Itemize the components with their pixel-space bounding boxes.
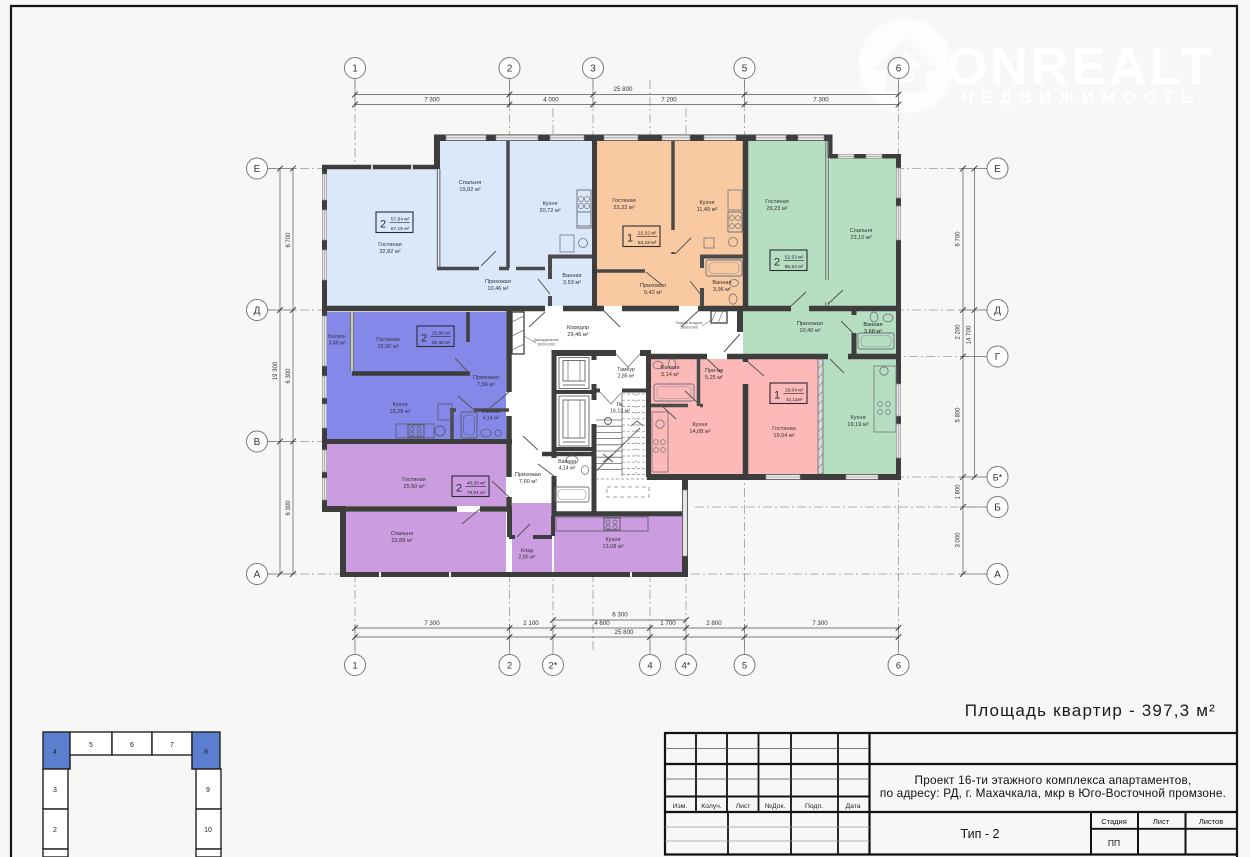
- svg-text:Площадь квартир - 397,3 м²: Площадь квартир - 397,3 м²: [965, 701, 1216, 720]
- svg-text:5: 5: [89, 742, 93, 749]
- svg-text:2: 2: [380, 219, 386, 231]
- svg-text:29,23 м²: 29,23 м²: [766, 206, 787, 212]
- svg-text:19,04 м²: 19,04 м²: [785, 388, 804, 394]
- svg-text:7 300: 7 300: [424, 97, 440, 104]
- svg-text:Ванная: Ванная: [863, 322, 882, 328]
- svg-text:2: 2: [456, 483, 462, 495]
- svg-text:6: 6: [896, 661, 901, 672]
- svg-text:Гостиная: Гостиная: [378, 242, 401, 248]
- svg-text:7 300: 7 300: [813, 97, 829, 104]
- svg-text:5 800: 5 800: [956, 407, 962, 423]
- svg-text:3,68 м²: 3,68 м²: [864, 329, 882, 335]
- svg-text:Гостиная: Гостиная: [772, 426, 795, 432]
- svg-text:7: 7: [170, 742, 174, 749]
- svg-text:Дата: Дата: [845, 803, 860, 810]
- svg-text:2: 2: [507, 661, 512, 672]
- svg-text:Спальня: Спальня: [459, 180, 481, 186]
- svg-text:1: 1: [774, 390, 780, 402]
- svg-text:2 100: 2 100: [523, 620, 539, 627]
- svg-text:2,85 м²: 2,85 м²: [519, 555, 536, 561]
- svg-text:Ванная: Ванная: [558, 459, 576, 465]
- svg-text:22,32 м²: 22,32 м²: [638, 231, 657, 237]
- svg-text:№Док.: №Док.: [765, 803, 786, 810]
- svg-text:Спальня: Спальня: [391, 531, 413, 537]
- svg-text:Кухня: Кухня: [606, 537, 621, 543]
- svg-text:Гостиная: Гостиная: [765, 199, 788, 205]
- svg-text:4,14 м²: 4,14 м²: [559, 466, 576, 472]
- svg-text:2,85 м²: 2,85 м²: [618, 374, 635, 380]
- svg-text:25,50 м²: 25,50 м²: [403, 484, 424, 490]
- svg-text:13,08 м²: 13,08 м²: [602, 544, 623, 550]
- svg-text:Ванная: Ванная: [660, 365, 679, 371]
- svg-text:4 600: 4 600: [594, 620, 610, 627]
- svg-text:При-ая: При-ая: [705, 368, 723, 374]
- svg-text:49,36 м²: 49,36 м²: [432, 340, 451, 346]
- svg-text:3: 3: [53, 787, 57, 794]
- svg-text:Лк.: Лк.: [616, 402, 623, 408]
- svg-text:6 300: 6 300: [612, 612, 628, 619]
- svg-text:Лист: Лист: [1153, 817, 1170, 826]
- svg-text:Прихожая: Прихожая: [797, 321, 823, 327]
- svg-text:10: 10: [204, 827, 212, 834]
- svg-text:4: 4: [53, 749, 57, 756]
- svg-text:Б*: Б*: [993, 473, 1003, 483]
- svg-text:А: А: [994, 570, 1001, 581]
- svg-text:7 300: 7 300: [424, 620, 440, 627]
- svg-text:Д: Д: [994, 306, 1001, 317]
- svg-text:11,49 м²: 11,49 м²: [697, 207, 718, 213]
- svg-text:23,10 м²: 23,10 м²: [850, 235, 871, 241]
- svg-text:6: 6: [130, 742, 134, 749]
- svg-text:32,82 м²: 32,82 м²: [379, 249, 400, 255]
- svg-text:Подп.: Подп.: [805, 803, 823, 810]
- svg-text:Спальня: Спальня: [850, 228, 872, 234]
- svg-text:1 800: 1 800: [956, 484, 962, 500]
- svg-text:Коридор: Коридор: [567, 325, 589, 331]
- svg-text:14 700: 14 700: [967, 325, 973, 344]
- svg-text:Прихожая: Прихожая: [473, 375, 499, 381]
- svg-text:87,15 м²: 87,15 м²: [391, 226, 410, 232]
- svg-text:8: 8: [204, 749, 208, 756]
- svg-text:Гостиная: Гостиная: [376, 337, 399, 343]
- svg-text:по адресу: РД, г. Махачкала, м: по адресу: РД, г. Махачкала, мкр в Юго-В…: [880, 786, 1226, 800]
- svg-text:16,13 м²: 16,13 м²: [610, 409, 630, 415]
- svg-text:9: 9: [206, 787, 210, 794]
- svg-text:Балкон: Балкон: [328, 334, 346, 340]
- svg-text:1: 1: [352, 64, 358, 75]
- svg-text:48,30 м²: 48,30 м²: [467, 481, 486, 487]
- svg-text:Изм.: Изм.: [673, 803, 688, 810]
- svg-text:14,08 м²: 14,08 м²: [689, 429, 710, 435]
- svg-text:2: 2: [53, 827, 57, 834]
- svg-text:10,46 м²: 10,46 м²: [487, 286, 508, 292]
- svg-text:6 300: 6 300: [286, 500, 292, 516]
- svg-text:3,53 м²: 3,53 м²: [563, 280, 581, 286]
- svg-text:9,42 м²: 9,42 м²: [644, 290, 662, 296]
- svg-text:Кухня: Кухня: [700, 200, 715, 206]
- svg-text:НЕДВИЖИМОСТЬ: НЕДВИЖИМОСТЬ: [961, 88, 1201, 107]
- svg-text:15,90 м²: 15,90 м²: [377, 344, 398, 350]
- svg-text:15,90 м²: 15,90 м²: [432, 331, 451, 337]
- svg-text:Стадия: Стадия: [1101, 817, 1127, 826]
- svg-text:1800х1000: 1800х1000: [537, 343, 555, 347]
- svg-text:2: 2: [421, 333, 427, 345]
- svg-text:2*: 2*: [549, 661, 558, 672]
- svg-text:3,48 м²: 3,48 м²: [329, 341, 346, 347]
- svg-text:25 800: 25 800: [614, 86, 633, 93]
- svg-text:6 700: 6 700: [286, 232, 292, 248]
- svg-text:Кухня: Кухня: [693, 422, 708, 428]
- svg-text:Ванная: Ванная: [482, 409, 500, 415]
- svg-text:22,88 м²: 22,88 м²: [391, 538, 412, 544]
- svg-text:85,52 м²: 85,52 м²: [785, 264, 804, 270]
- svg-text:20,72 м²: 20,72 м²: [539, 208, 560, 214]
- svg-text:4,14 м²: 4,14 м²: [483, 416, 500, 422]
- svg-text:ПП: ПП: [1108, 838, 1120, 848]
- svg-text:57,84 м²: 57,84 м²: [391, 217, 410, 223]
- svg-text:Б: Б: [994, 503, 1001, 514]
- svg-text:7,60 м²: 7,60 м²: [519, 479, 537, 485]
- svg-text:Кухня: Кухня: [851, 415, 866, 421]
- svg-text:3: 3: [590, 64, 596, 75]
- svg-text:4: 4: [647, 661, 652, 672]
- svg-text:Г: Г: [995, 352, 1001, 363]
- svg-text:29,46 м²: 29,46 м²: [567, 332, 588, 338]
- svg-text:5: 5: [742, 661, 747, 672]
- svg-text:Гостиная: Гостиная: [612, 198, 635, 204]
- svg-text:Прихожая: Прихожая: [515, 472, 541, 478]
- svg-text:53,19 м²: 53,19 м²: [638, 240, 657, 246]
- svg-text:1800х1000: 1800х1000: [680, 326, 698, 330]
- svg-text:10,40 м²: 10,40 м²: [799, 328, 820, 334]
- svg-text:4*: 4*: [682, 661, 691, 672]
- svg-text:Ванная: Ванная: [562, 273, 581, 279]
- svg-text:5,25 м²: 5,25 м²: [705, 375, 723, 381]
- svg-text:6: 6: [896, 64, 902, 75]
- svg-text:22,32 м²: 22,32 м²: [613, 205, 634, 211]
- svg-text:Тамбур: Тамбур: [617, 367, 635, 373]
- svg-text:5: 5: [742, 64, 748, 75]
- svg-text:Подпор Воздуха: Подпор Воздуха: [675, 321, 702, 325]
- svg-text:Колуч.: Колуч.: [701, 803, 721, 810]
- svg-text:25 800: 25 800: [615, 629, 634, 636]
- svg-text:79,91 м²: 79,91 м²: [467, 490, 486, 496]
- svg-text:Е: Е: [254, 164, 261, 175]
- svg-text:4 000: 4 000: [543, 97, 559, 104]
- svg-text:1: 1: [352, 661, 357, 672]
- svg-text:19,82 м²: 19,82 м²: [459, 187, 480, 193]
- svg-text:Ванная: Ванная: [712, 280, 731, 286]
- svg-text:19,19 м²: 19,19 м²: [847, 422, 868, 428]
- svg-text:19,04 м²: 19,04 м²: [773, 433, 794, 439]
- svg-text:Дымоудаление: Дымоудаление: [533, 338, 558, 342]
- svg-text:52,53 м²: 52,53 м²: [785, 255, 804, 261]
- svg-text:Листов: Листов: [1199, 817, 1223, 826]
- svg-text:Лист: Лист: [736, 803, 751, 810]
- svg-text:19 300: 19 300: [273, 361, 279, 380]
- svg-text:2: 2: [774, 257, 780, 269]
- svg-text:Кухня: Кухня: [543, 201, 558, 207]
- svg-text:18,28 м²: 18,28 м²: [389, 409, 410, 415]
- svg-text:2 800: 2 800: [706, 620, 722, 627]
- svg-text:1 700: 1 700: [660, 620, 676, 627]
- svg-text:Проект 16-ти этажного комплекс: Проект 16-ти этажного комплекса апартаме…: [915, 773, 1192, 787]
- svg-text:А: А: [254, 570, 261, 581]
- svg-text:42,11м²: 42,11м²: [786, 397, 803, 403]
- svg-text:7 300: 7 300: [812, 620, 828, 627]
- svg-text:Гостиная: Гостиная: [402, 477, 425, 483]
- svg-text:7 200: 7 200: [661, 97, 677, 104]
- svg-text:1: 1: [627, 233, 633, 245]
- svg-text:Кухня: Кухня: [393, 402, 408, 408]
- svg-text:Прихожая: Прихожая: [485, 279, 511, 285]
- svg-text:Клад: Клад: [521, 548, 533, 554]
- svg-text:Тип - 2: Тип - 2: [961, 827, 1000, 841]
- svg-text:В: В: [254, 437, 261, 448]
- svg-text:6 700: 6 700: [956, 231, 962, 247]
- svg-text:7,56 м²: 7,56 м²: [477, 382, 495, 388]
- svg-text:Е: Е: [994, 164, 1001, 175]
- svg-text:2 200: 2 200: [956, 324, 962, 340]
- svg-text:6 300: 6 300: [286, 368, 292, 384]
- svg-text:3 000: 3 000: [956, 532, 962, 548]
- svg-text:Д: Д: [254, 306, 261, 317]
- svg-text:2: 2: [507, 64, 513, 75]
- svg-text:3,14 м²: 3,14 м²: [661, 372, 679, 378]
- svg-text:Прихожая: Прихожая: [640, 283, 666, 289]
- svg-text:3,96 м²: 3,96 м²: [713, 287, 731, 293]
